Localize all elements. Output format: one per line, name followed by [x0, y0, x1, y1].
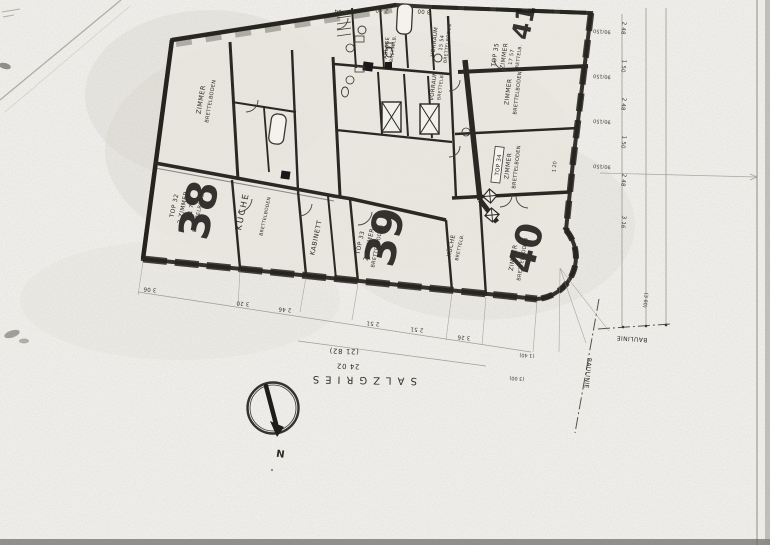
shaft-box: [382, 102, 401, 132]
flue: [385, 62, 392, 69]
street-name: SALZGRIES: [307, 373, 417, 386]
north-label: N: [276, 446, 286, 458]
dim-bottom: 3 06: [143, 286, 157, 293]
floor-plan-drawing: 38 39 40 41 TOP 32 2 ZIMMER 21 70 BRETTE…: [0, 0, 770, 545]
dim-bottom: 2 51: [366, 320, 379, 327]
street-dim-outer: 24 02: [336, 362, 359, 371]
dim-top: 3 00: [417, 8, 431, 15]
flue: [280, 170, 290, 179]
scanned-floor-plan-sheet: 38 39 40 41 TOP 32 2 ZIMMER 21 70 BRETTE…: [0, 0, 770, 545]
dim-tick: [622, 326, 625, 329]
scan-edge-right: [765, 0, 770, 545]
dim-window: 90/150: [593, 117, 611, 124]
shaft-box: [420, 104, 439, 134]
dim-window: 90/150: [593, 162, 611, 169]
dim-corner: (1 40): [519, 351, 534, 358]
dim-top: 2 40: [375, 7, 389, 14]
street-dim-inner: (21 82): [329, 346, 359, 355]
dim-bottom: 3 20: [236, 300, 250, 307]
dim-top: 4 04: [334, 8, 348, 15]
dim-bottom: 2 46: [278, 306, 292, 313]
bathtub: [396, 4, 413, 35]
dim-corner: (3 00): [509, 374, 524, 381]
speck: [271, 469, 273, 471]
smudge: [19, 339, 29, 344]
dim-window: 90/150: [593, 27, 611, 34]
dim-tick: [665, 324, 668, 327]
scan-edge-bottom: [0, 539, 770, 545]
dim-bottom: 3 26: [457, 334, 471, 341]
dim-bottom: 2 51: [410, 326, 423, 333]
dim-tick: [645, 325, 648, 328]
dim-window: 90/150: [593, 72, 611, 79]
